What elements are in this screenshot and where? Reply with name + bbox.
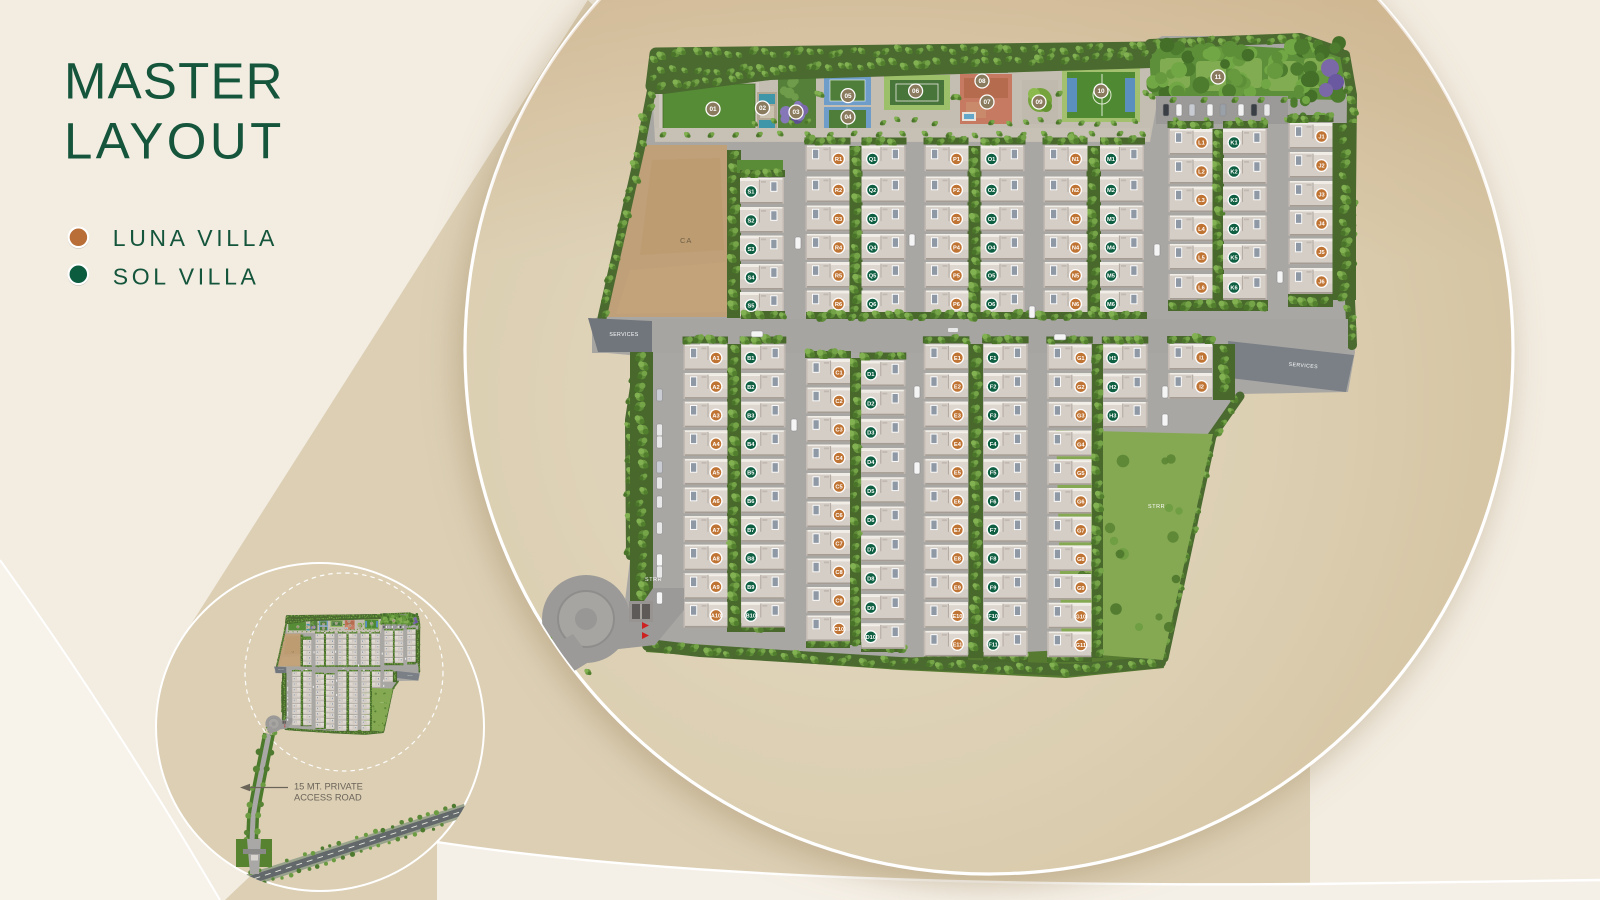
svg-text:ACCESS ROAD: ACCESS ROAD bbox=[294, 793, 362, 803]
svg-text:SOL VILLA: SOL VILLA bbox=[113, 264, 260, 290]
svg-text:LUNA VILLA: LUNA VILLA bbox=[113, 225, 278, 251]
svg-text:LAYOUT: LAYOUT bbox=[64, 112, 285, 169]
svg-text:MASTER: MASTER bbox=[64, 53, 284, 110]
svg-text:15 MT. PRIVATE: 15 MT. PRIVATE bbox=[294, 782, 363, 792]
